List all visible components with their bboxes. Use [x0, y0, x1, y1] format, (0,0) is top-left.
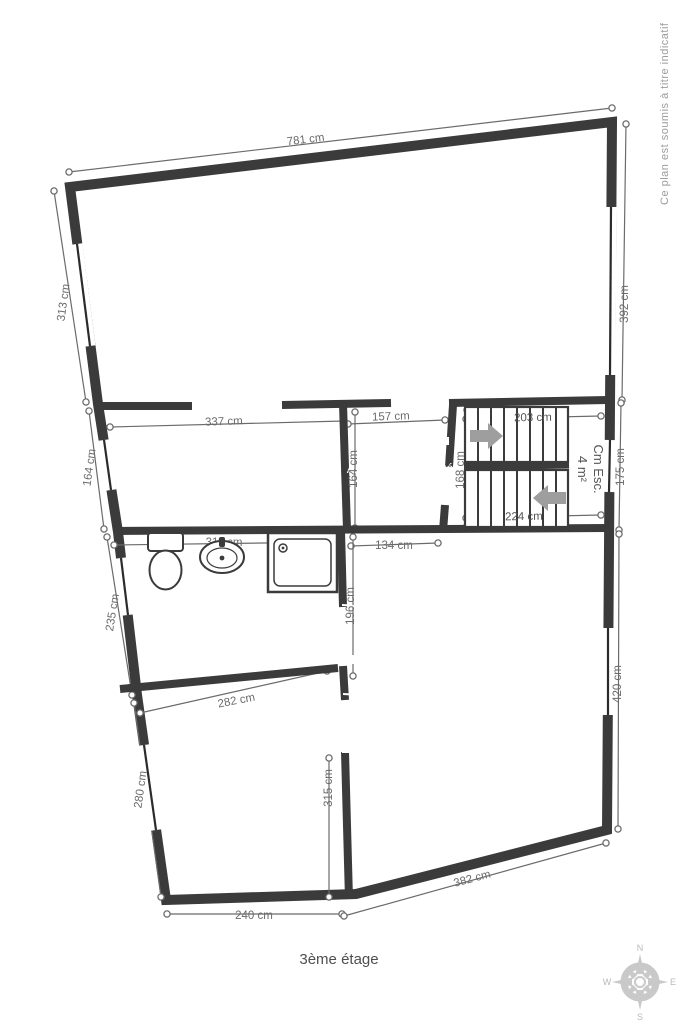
dim-chambre2-height: 315 cm: [323, 769, 335, 807]
window: [610, 207, 611, 375]
dim-left-cuisine: 164 cm: [81, 448, 98, 487]
dim-right-sejour: 392 cm: [619, 285, 631, 323]
dim-hall-width: 157 cm: [372, 410, 410, 423]
room-label-salle-douche: App 4 Salle douche: [169, 599, 286, 614]
compass-rose: N E S W: [603, 943, 676, 1022]
room-area-sejour: 26 m²: [328, 269, 363, 284]
room-area-hall: 2 m²: [391, 481, 419, 496]
staircase: [464, 407, 569, 527]
room-area-chambre1: 17 m²: [458, 721, 493, 736]
dim-chambre2-bottom: 240 cm: [235, 910, 273, 922]
floor-plan-page: 311 cm App 4 séjour 26 m² App 4 Cuisine …: [0, 0, 682, 1024]
shower-icon: [268, 533, 337, 592]
dim-left-sejour: 313 cm: [55, 283, 72, 322]
room-label-chambre2: App 4 Chambre 2: [182, 771, 288, 786]
room-area-salle-douche: 6 m²: [215, 619, 243, 634]
bathroom-fixtures: [148, 533, 337, 592]
room-label-cuisine: App 4 Cuisine: [179, 454, 263, 469]
room-area-escalier: 4 m²: [575, 456, 590, 483]
dim-esc-upper: 203 cm: [514, 412, 552, 425]
room-label-escalier: Cm Esc.: [591, 444, 606, 493]
room-area-cuisine: 5 m²: [208, 474, 236, 489]
compass-e: E: [670, 977, 676, 987]
room-label-hall: App 4 Hall d'entrée: [347, 461, 461, 476]
compass-s: S: [637, 1012, 643, 1022]
dim-right-esc: 175 cm: [615, 448, 627, 486]
compass-n: N: [637, 943, 644, 953]
door: [342, 694, 397, 753]
window: [609, 440, 610, 492]
dim-salle-douche-height: 196 cm: [345, 587, 357, 625]
floor-title: 3ème étage: [299, 951, 378, 968]
disclaimer-note: Ce plan est soumis à titre indicatif: [659, 22, 671, 205]
toilet-icon: [148, 533, 183, 590]
window: [77, 244, 90, 346]
dim-esc-lower: 224 cm: [505, 511, 543, 524]
dim-esc-height: 168 cm: [455, 451, 467, 489]
room-label-sejour: App 4 séjour: [307, 249, 383, 264]
dim-hall-height: 164 cm: [348, 450, 360, 488]
window: [121, 558, 128, 615]
floor-plan: 311 cm App 4 séjour 26 m² App 4 Cuisine …: [0, 0, 682, 1024]
room-area-chambre2: 8 m²: [222, 791, 250, 806]
compass-w: W: [603, 977, 612, 987]
dim-right-chambre1: 420 cm: [612, 665, 624, 703]
dim-hall-bottom: 134 cm: [375, 540, 413, 552]
window: [104, 440, 111, 490]
room-label-chambre1: App 4 Chambre 1: [422, 701, 528, 716]
dim-top: 781 cm: [286, 132, 325, 149]
dim-cuisine-width: 337 cm: [205, 415, 243, 428]
